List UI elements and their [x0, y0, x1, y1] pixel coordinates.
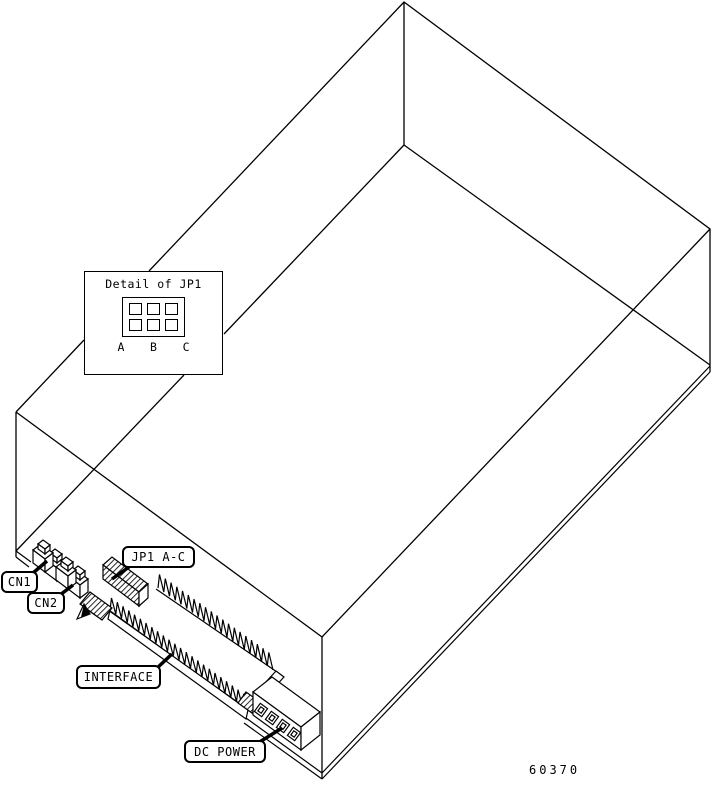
pin-label-a: A — [118, 340, 125, 354]
callout-interface-label: INTERFACE — [76, 665, 161, 689]
jp1-pin-grid — [122, 297, 185, 337]
figure-canvas: CN1 CN2 JP1 A-C INTERFACE DC POWER Detai… — [0, 0, 712, 788]
pin-label-c: C — [183, 340, 190, 354]
jp1-grid-cell — [147, 303, 160, 315]
jp1-grid-cell — [165, 319, 178, 331]
jp1-grid-cell — [129, 303, 142, 315]
callout-jp1-label: JP1 A-C — [122, 546, 195, 568]
cn1-cn2-connectors — [33, 540, 88, 598]
inset-title: Detail of JP1 — [105, 277, 202, 291]
figure-number: 60370 — [529, 763, 580, 777]
callout-cn2-label: CN2 — [27, 592, 65, 614]
jp1-pin-labels: A B C — [118, 340, 190, 354]
callout-cn1-label: CN1 — [1, 571, 38, 593]
jp1-detail-inset: Detail of JP1 A B C — [84, 271, 223, 375]
jp1-grid-cell — [129, 319, 142, 331]
jp1-grid-cell — [165, 303, 178, 315]
chassis-outline — [16, 2, 710, 779]
callout-dc-power-label: DC POWER — [184, 740, 266, 763]
jp1-grid-cell — [147, 319, 160, 331]
pin-label-b: B — [150, 340, 157, 354]
